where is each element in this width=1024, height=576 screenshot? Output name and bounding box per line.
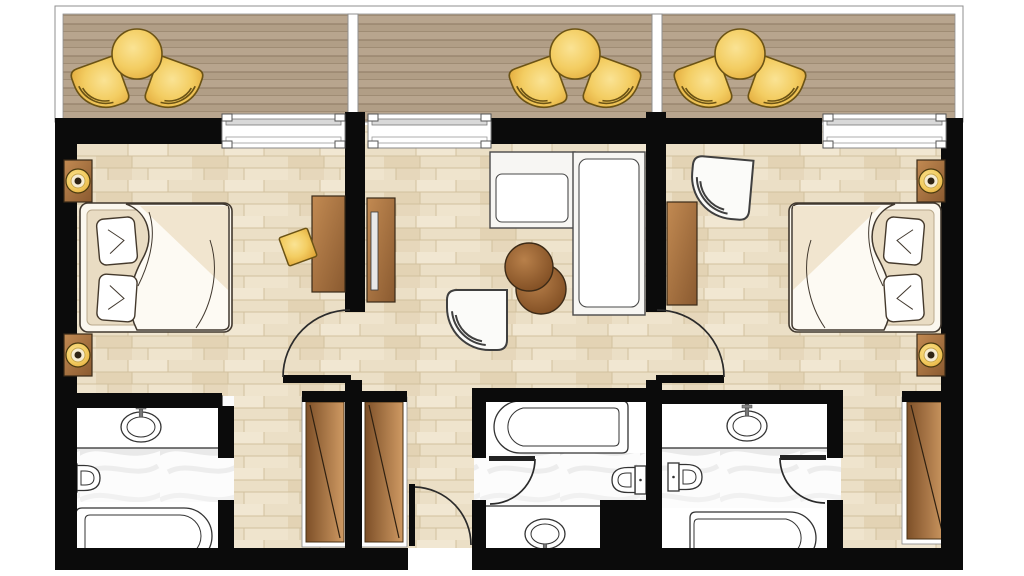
partition-wall xyxy=(646,380,662,555)
toilet-icon xyxy=(668,463,702,491)
sliding-window xyxy=(222,114,345,148)
sliding-window xyxy=(368,114,491,148)
floor-plan-canvas xyxy=(0,0,1024,576)
partition-wall xyxy=(646,112,666,312)
dresser xyxy=(667,202,697,305)
nightstand-with-lamp xyxy=(64,334,92,376)
desk xyxy=(312,196,345,292)
wardrobe xyxy=(907,402,946,539)
floor-plan xyxy=(0,0,1024,576)
round-side-table xyxy=(505,243,553,291)
toilet-icon xyxy=(612,466,646,494)
partition-wall xyxy=(345,380,362,570)
tv-icon xyxy=(371,212,378,290)
nightstand-with-lamp xyxy=(917,334,945,376)
nightstand-with-lamp xyxy=(917,160,945,202)
service-duct xyxy=(600,500,648,555)
nightstand-with-lamp xyxy=(64,160,92,202)
bathroom-left xyxy=(58,396,234,570)
balcony xyxy=(55,6,963,122)
double-bed xyxy=(789,203,941,332)
balcony-divider xyxy=(652,14,662,122)
partition-wall xyxy=(345,112,365,312)
balcony-divider xyxy=(348,14,358,122)
bathroom-middle xyxy=(474,398,648,570)
bathroom-right xyxy=(661,400,841,570)
bathtub-icon xyxy=(494,401,628,453)
sliding-window xyxy=(823,114,946,148)
entry-threshold xyxy=(408,548,472,570)
double-bed xyxy=(80,203,232,332)
exterior-wall-bottom xyxy=(472,548,963,570)
